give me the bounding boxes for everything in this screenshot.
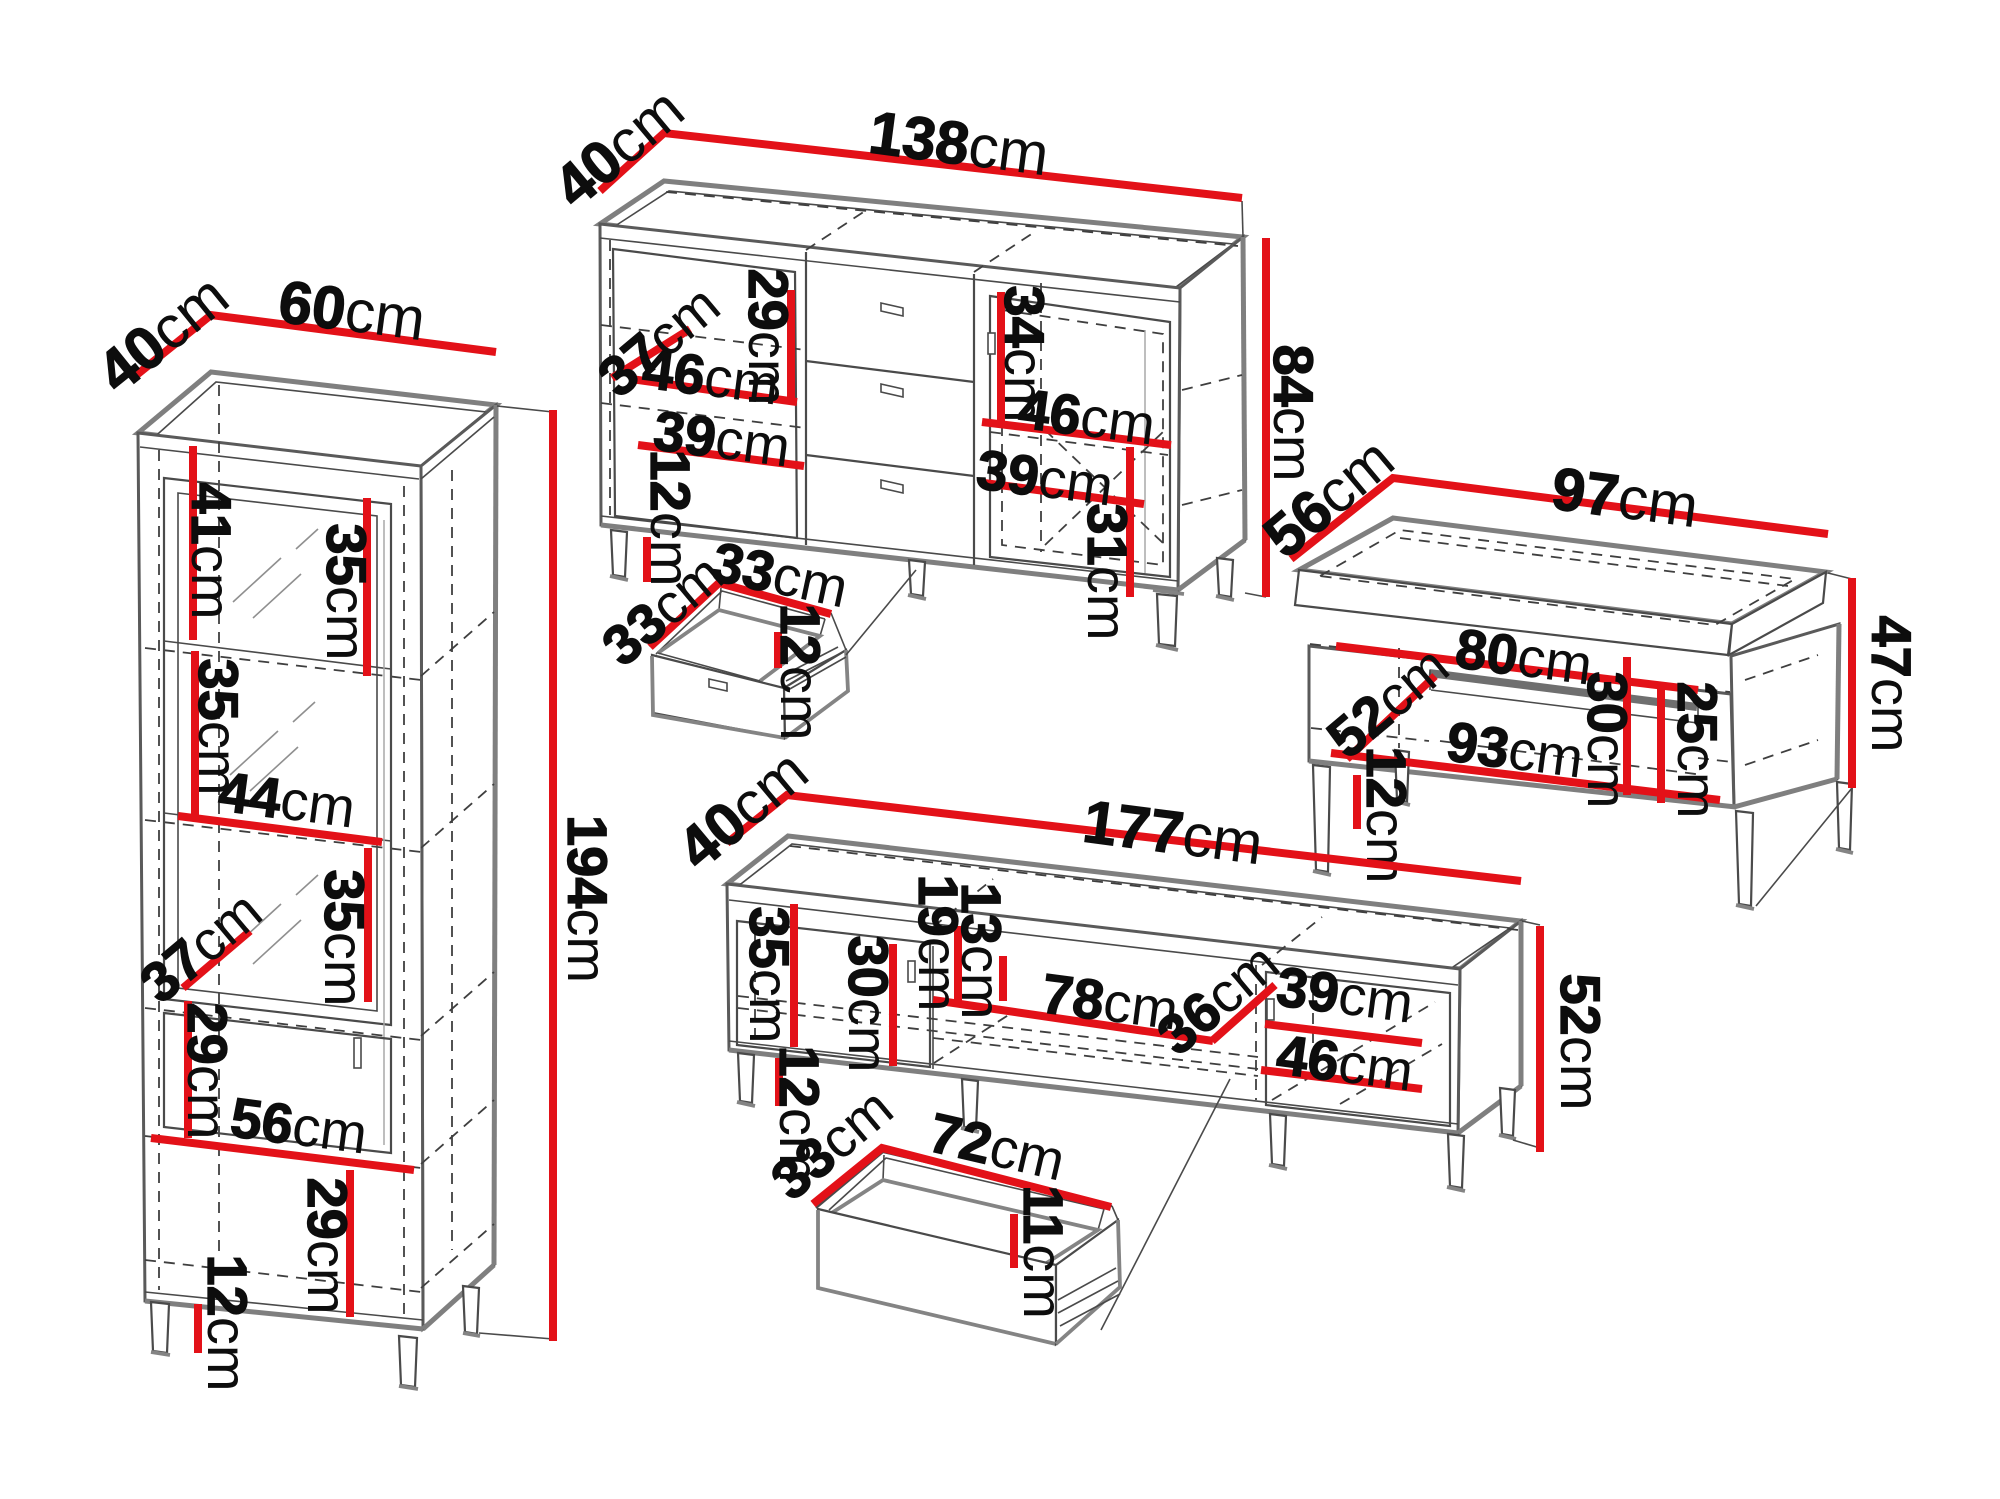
svg-text:41cm: 41cm bbox=[180, 483, 243, 620]
svg-text:47cm: 47cm bbox=[1860, 616, 1923, 753]
svg-text:13cm: 13cm bbox=[950, 883, 1013, 1020]
svg-text:31cm: 31cm bbox=[1076, 504, 1139, 641]
svg-text:52cm: 52cm bbox=[1549, 974, 1612, 1111]
svg-text:84cm: 84cm bbox=[1262, 345, 1325, 482]
svg-text:11cm: 11cm bbox=[1012, 1185, 1075, 1319]
svg-text:35cm: 35cm bbox=[313, 870, 376, 1007]
svg-text:194cm: 194cm bbox=[556, 815, 619, 983]
svg-text:25cm: 25cm bbox=[1666, 682, 1729, 819]
svg-text:35cm: 35cm bbox=[738, 907, 801, 1044]
svg-text:29cm: 29cm bbox=[176, 1003, 239, 1140]
svg-text:35cm: 35cm bbox=[315, 524, 378, 661]
svg-text:30cm: 30cm bbox=[1576, 672, 1639, 809]
svg-text:29cm: 29cm bbox=[296, 1178, 359, 1315]
svg-text:12cm: 12cm bbox=[196, 1255, 259, 1392]
svg-text:30cm: 30cm bbox=[837, 936, 900, 1073]
svg-text:12cm: 12cm bbox=[769, 604, 832, 741]
